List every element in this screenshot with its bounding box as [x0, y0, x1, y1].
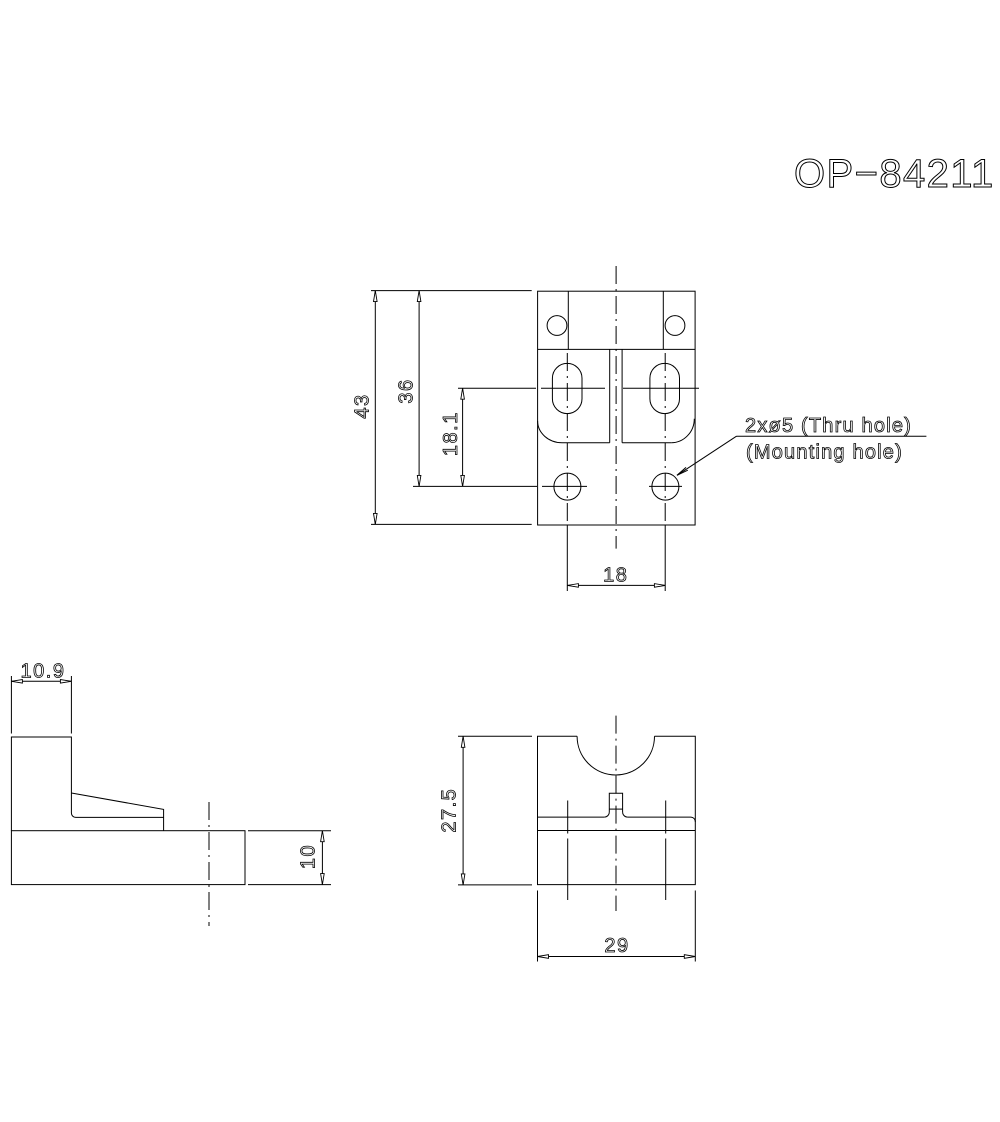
- svg-text:2xø5 (Thru hole): 2xø5 (Thru hole): [745, 415, 912, 437]
- svg-text:43: 43: [352, 393, 374, 418]
- svg-text:18.1: 18.1: [440, 411, 462, 456]
- svg-text:29: 29: [604, 935, 629, 957]
- svg-text:27.5: 27.5: [439, 788, 461, 833]
- svg-text:10.9: 10.9: [21, 661, 66, 683]
- svg-text:10: 10: [298, 844, 320, 869]
- svg-text:OP−84211: OP−84211: [794, 152, 995, 196]
- svg-text:18: 18: [603, 565, 628, 587]
- svg-text:(Mounting hole): (Mounting hole): [746, 442, 903, 464]
- svg-text:36: 36: [396, 378, 418, 403]
